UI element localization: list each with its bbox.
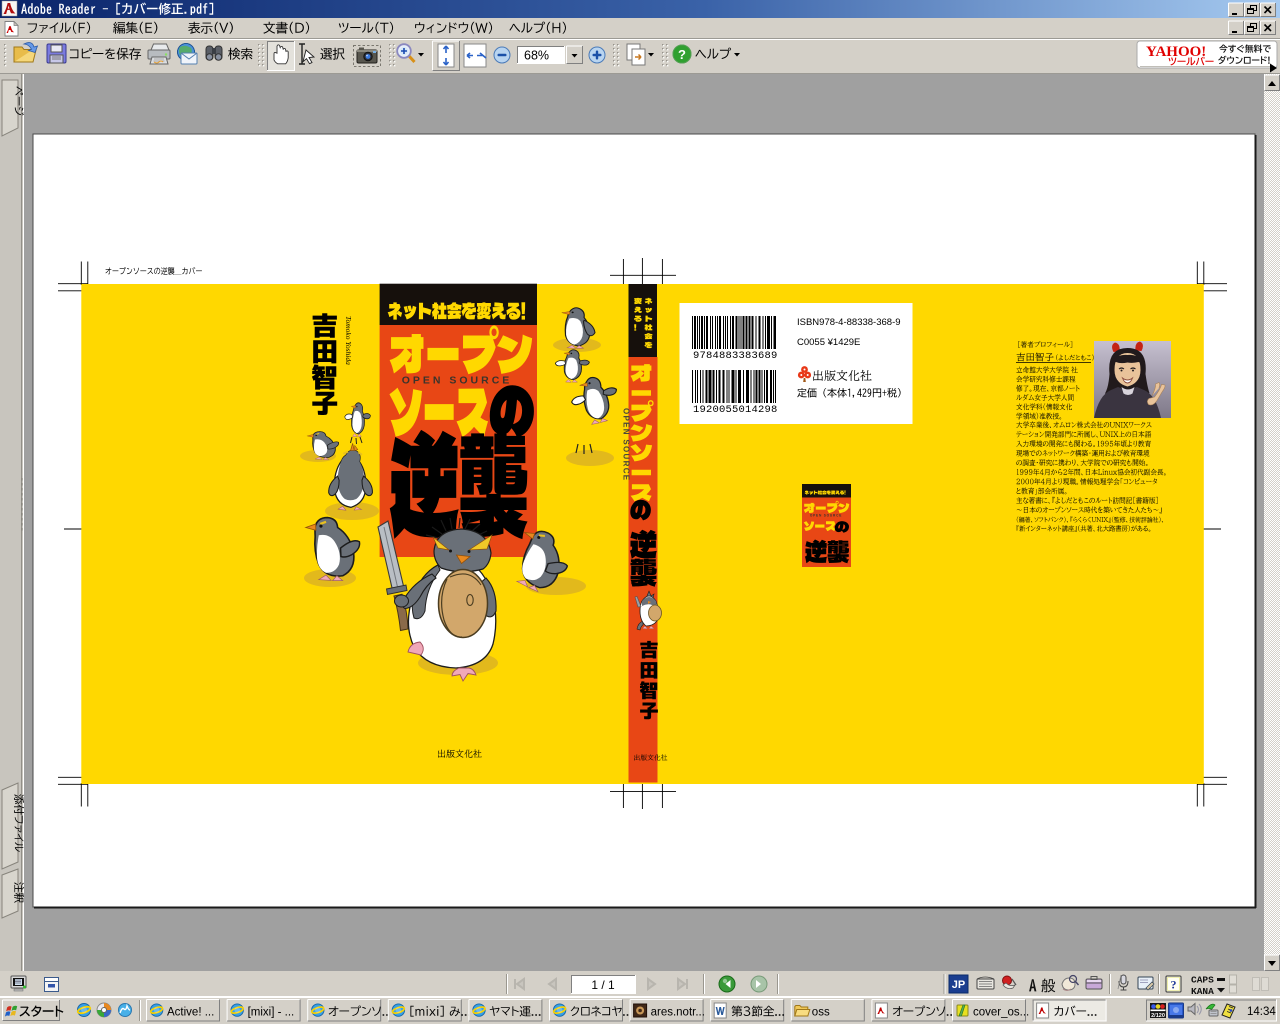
svg-text:14:34: 14:34 (1247, 1006, 1276, 1018)
svg-text:OPEN SOURCE: OPEN SOURCE (810, 514, 842, 518)
svg-text:OPEN SOURCE: OPEN SOURCE (402, 375, 513, 387)
svg-text:1 / 1: 1 / 1 (591, 978, 615, 992)
svg-text:9784883383689: 9784883383689 (693, 350, 778, 362)
svg-text:ares.notr...: ares.notr... (651, 1007, 705, 1019)
svg-text:cover_os...: cover_os... (973, 1007, 1029, 1019)
svg-text:oss: oss (812, 1007, 830, 1019)
svg-text:68%: 68% (524, 49, 549, 63)
svg-text:[mixi] - ...: [mixi] - ... (248, 1007, 295, 1019)
svg-text:CAPS: CAPS (1191, 975, 1214, 986)
svg-text:Active! ...: Active! ... (167, 1007, 214, 1019)
svg-text:Tomoko Yoshida: Tomoko Yoshida (344, 316, 353, 365)
svg-text:2/120: 2/120 (1151, 1013, 1165, 1019)
svg-text:KANA: KANA (1191, 986, 1214, 997)
svg-text:?: ? (1171, 978, 1177, 992)
svg-text:C0055 ¥1429E: C0055 ¥1429E (797, 337, 860, 348)
svg-text:?: ? (678, 47, 686, 62)
svg-text:1920055014298: 1920055014298 (693, 404, 778, 416)
svg-text:ISBN978-4-88338-368-9: ISBN978-4-88338-368-9 (797, 317, 901, 328)
svg-text:OPEN SOURCE: OPEN SOURCE (622, 408, 631, 481)
svg-text:JP: JP (952, 979, 965, 991)
svg-text:YAHOO!: YAHOO! (1146, 44, 1206, 60)
